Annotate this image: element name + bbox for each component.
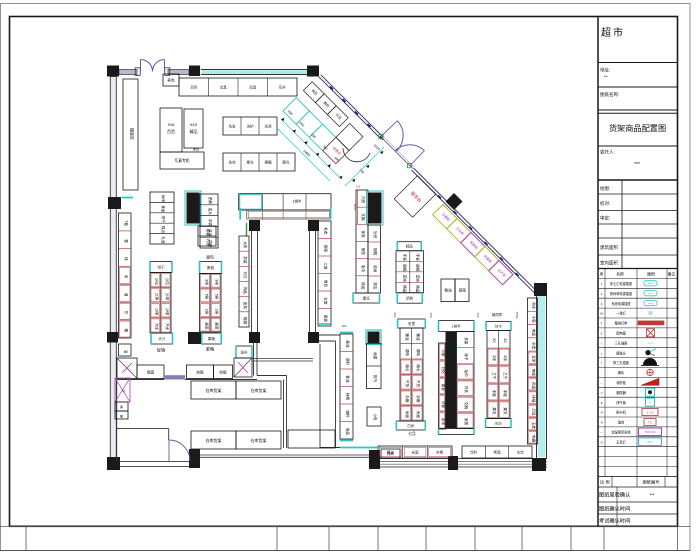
- svg-text:排汽: 排汽: [373, 375, 378, 383]
- svg-text:条码秤电源插座: 条码秤电源插座: [610, 291, 633, 296]
- svg-text:清洁: 清洁: [373, 282, 378, 290]
- svg-text:洗衣: 洗衣: [228, 159, 236, 164]
- svg-text:室内面积: 室内面积: [600, 260, 618, 267]
- svg-text:首饰: 首饰: [416, 275, 421, 283]
- svg-text:206: 206: [393, 312, 397, 317]
- svg-text:豆浆: 豆浆: [532, 355, 537, 363]
- svg-text:小电: 小电: [373, 414, 378, 421]
- svg-text:眼镜: 眼镜: [402, 264, 407, 272]
- svg-text:文胸: 文胸: [464, 402, 469, 410]
- svg-text:服装区: 服装区: [130, 128, 136, 140]
- svg-text:排插: 排插: [532, 395, 537, 403]
- svg-text:西服: 西服: [324, 245, 329, 253]
- svg-text:饼干: 饼干: [157, 264, 165, 269]
- svg-text:380: 380: [341, 324, 346, 328]
- svg-text:礼盒: 礼盒: [161, 236, 166, 244]
- svg-text:沙嗲: 沙嗲: [165, 308, 170, 316]
- svg-text:3排: 3排: [204, 279, 209, 285]
- svg-text:收纳: 收纳: [373, 265, 378, 273]
- svg-text:冲调: 冲调: [208, 219, 213, 227]
- svg-text:粮油: 粮油: [416, 333, 421, 341]
- svg-text:***: ***: [650, 493, 655, 498]
- svg-text:奶粉: 奶粉: [406, 295, 414, 300]
- svg-text:袜子: 袜子: [464, 353, 469, 361]
- svg-text:喇叭: 喇叭: [618, 370, 625, 375]
- svg-text:南北: 南北: [416, 364, 421, 372]
- svg-text:带三孔插座: 带三孔插座: [613, 360, 630, 365]
- svg-text:精品: 精品: [416, 285, 421, 293]
- svg-text:-4: -4: [600, 411, 603, 415]
- svg-text:米: 米: [124, 275, 129, 279]
- svg-text:米面: 米面: [405, 411, 410, 419]
- svg-text:序: 序: [600, 272, 604, 277]
- svg-text:===: ===: [648, 301, 654, 305]
- svg-text:文具: 文具: [220, 84, 228, 89]
- svg-text:七月: 七月: [408, 431, 416, 436]
- svg-text:洗护: 洗护: [246, 123, 254, 128]
- svg-text:手表: 手表: [416, 254, 421, 262]
- svg-text:蔬菜: 蔬菜: [459, 288, 467, 293]
- svg-text:调味: 调味: [416, 349, 421, 357]
- svg-text:超市: 超市: [601, 26, 625, 39]
- svg-text:汽水: 汽水: [165, 323, 170, 331]
- svg-text:收银: 收银: [219, 370, 227, 375]
- svg-text:花卉: 花卉: [279, 84, 287, 89]
- svg-text:2排: 2排: [215, 309, 220, 315]
- svg-text:烟感器: 烟感器: [616, 390, 626, 395]
- svg-text:客: 客: [120, 404, 123, 409]
- svg-text:沙拉: 沙拉: [155, 278, 160, 286]
- svg-text:精品: 精品: [190, 128, 198, 134]
- svg-text:收银: 收银: [196, 370, 204, 375]
- svg-text:酱油: 酱油: [346, 340, 351, 348]
- svg-text:风扇: 风扇: [532, 382, 537, 390]
- svg-text:手链: 手链: [492, 390, 497, 398]
- svg-text:沙拉: 沙拉: [165, 278, 170, 286]
- svg-text:3X: 3X: [503, 338, 507, 343]
- svg-text:溢补: 溢补: [240, 349, 248, 354]
- svg-text:文胸: 文胸: [361, 213, 366, 221]
- svg-text:===: ===: [648, 341, 654, 345]
- svg-text:女装: 女装: [324, 297, 329, 305]
- svg-text:考试确认时间: 考试确认时间: [599, 517, 630, 525]
- svg-text:消防栓: 消防栓: [616, 380, 626, 385]
- svg-text:日化: 日化: [441, 366, 446, 374]
- svg-text:米面: 米面: [411, 449, 419, 454]
- svg-text:休闲: 休闲: [161, 195, 166, 203]
- svg-text:童: 童: [124, 239, 129, 243]
- svg-text:精品: 精品: [402, 285, 407, 293]
- svg-text:审定:: 审定:: [600, 215, 610, 222]
- svg-text:x: x: [649, 401, 651, 405]
- svg-text:果糖: 果糖: [264, 159, 272, 164]
- svg-text:饮: 饮: [124, 311, 129, 315]
- svg-text:加湿喷雾系统: 加湿喷雾系统: [611, 430, 631, 435]
- svg-text:306: 306: [476, 312, 480, 317]
- svg-text:-6: -6: [600, 440, 603, 444]
- svg-text:服: 服: [120, 414, 123, 419]
- svg-text:五克灯: 五克灯: [616, 439, 626, 444]
- svg-text:仓库货架: 仓库货架: [206, 387, 222, 393]
- svg-text:绘图:: 绘图:: [600, 185, 610, 192]
- svg-text:果冻: 果冻: [503, 407, 508, 415]
- svg-text:麦片: 麦片: [208, 208, 213, 216]
- svg-text:调味: 调味: [405, 349, 410, 357]
- svg-text:果冻: 果冻: [246, 159, 254, 164]
- svg-text:男装: 男装: [243, 256, 248, 264]
- svg-text:内衣: 内衣: [361, 196, 366, 204]
- svg-text:毛巾: 毛巾: [464, 370, 469, 378]
- svg-text:图纸确认时间: 图纸确认时间: [599, 505, 630, 513]
- svg-text:整排灯带: 整排灯带: [615, 321, 629, 326]
- svg-text:1排半: 1排半: [452, 323, 462, 328]
- svg-text:玩具: 玩具: [249, 84, 257, 89]
- svg-text:毛巾: 毛巾: [361, 265, 366, 273]
- svg-text:百货: 百货: [167, 128, 175, 134]
- svg-text:果冻: 果冻: [492, 407, 497, 415]
- svg-text:排气扇: 排气扇: [616, 400, 626, 405]
- svg-text:杂粮: 杂粮: [405, 395, 410, 403]
- svg-text:沙嗲: 沙嗲: [155, 308, 160, 316]
- svg-text:天汁: 天汁: [158, 336, 166, 341]
- svg-text:鞋帽: 鞋帽: [243, 317, 248, 325]
- svg-text:名称: 名称: [616, 272, 624, 277]
- svg-text:5排: 5排: [215, 294, 220, 300]
- svg-text:调料: 调料: [346, 358, 351, 366]
- svg-text:奶粉: 奶粉: [208, 197, 213, 205]
- svg-text:皮具: 皮具: [243, 302, 248, 310]
- svg-text:三孔插座: 三孔插座: [615, 340, 629, 345]
- svg-text:-8: -8: [600, 421, 603, 425]
- svg-text:===: ===: [648, 282, 654, 286]
- svg-text:之宁: 之宁: [492, 372, 497, 380]
- svg-text:衬衫: 衬衫: [243, 272, 248, 280]
- svg-text:刷卡机: 刷卡机: [616, 410, 626, 415]
- svg-text:水白: 水白: [495, 420, 503, 425]
- svg-text:图例: 图例: [647, 272, 655, 277]
- svg-text:图纸编号: 图纸编号: [643, 479, 660, 486]
- svg-text:小家: 小家: [441, 349, 446, 357]
- svg-text:牙膏: 牙膏: [441, 401, 446, 409]
- svg-text:果略: 果略: [208, 336, 216, 341]
- svg-text:-7: -7: [600, 391, 603, 395]
- svg-text:食品: 食品: [346, 428, 351, 436]
- svg-text:手链: 手链: [503, 390, 508, 398]
- svg-text:1.3.5: 1.3.5: [647, 410, 654, 414]
- svg-text:童装: 童装: [324, 315, 329, 323]
- svg-text:汽水: 汽水: [155, 323, 160, 331]
- svg-text:图纸名称:: 图纸名称:: [600, 91, 619, 98]
- svg-text:毛衣: 毛衣: [324, 227, 329, 235]
- svg-text:T恤: T恤: [124, 220, 129, 226]
- svg-text:地址:: 地址:: [600, 67, 610, 73]
- svg-text:水饮: 水饮: [517, 449, 525, 454]
- svg-text:面包: 面包: [206, 255, 214, 260]
- svg-text:地屋: 地屋: [373, 352, 378, 360]
- svg-text:夹02: 夹02: [193, 147, 200, 152]
- svg-text:仓库货架: 仓库货架: [251, 387, 267, 393]
- svg-text:沙琪: 沙琪: [165, 293, 170, 301]
- svg-text:烟酒: 烟酒: [147, 370, 155, 375]
- svg-text:M: M: [648, 311, 652, 317]
- svg-text:香油: 香油: [346, 375, 351, 383]
- svg-text:比 例: 比 例: [600, 479, 610, 486]
- svg-text:写真专柜: 写真专柜: [174, 158, 189, 163]
- svg-text:童装: 童装: [206, 229, 211, 237]
- svg-text:饮料: 饮料: [470, 449, 478, 454]
- svg-text:情侣: 情侣: [324, 280, 329, 288]
- svg-text:洗涤: 洗涤: [264, 123, 272, 128]
- svg-text:啤酒: 啤酒: [493, 449, 501, 454]
- svg-text:之宁: 之宁: [503, 372, 508, 380]
- svg-text:食品: 食品: [161, 205, 166, 213]
- svg-text:手表: 手表: [402, 254, 407, 262]
- svg-text:5排: 5排: [204, 294, 209, 300]
- svg-text:南北: 南北: [405, 364, 410, 372]
- svg-text:监控: 监控: [618, 420, 625, 425]
- svg-text:家居: 家居: [464, 418, 469, 426]
- svg-text:700 600: 700 600: [645, 430, 656, 434]
- svg-text:洗发: 洗发: [228, 123, 236, 128]
- svg-text:委托人:: 委托人:: [600, 149, 615, 155]
- svg-text:衣架: 衣架: [464, 337, 469, 345]
- svg-text:菜略: 菜略: [206, 346, 215, 353]
- svg-text:多士汇电源插座: 多士汇电源插座: [610, 281, 633, 286]
- svg-text:眼镜: 眼镜: [416, 264, 421, 272]
- svg-text:电饭: 电饭: [532, 329, 537, 337]
- svg-text:促销: 促销: [157, 347, 165, 354]
- svg-text:家居: 家居: [361, 248, 366, 256]
- svg-text:夹里: 夹里: [408, 321, 416, 326]
- svg-text:灯具: 灯具: [532, 408, 537, 416]
- svg-text:3排: 3排: [215, 279, 220, 285]
- svg-text:糕点: 糕点: [161, 226, 166, 234]
- svg-text:3排: 3排: [503, 355, 508, 361]
- svg-text:3X: 3X: [492, 338, 496, 343]
- svg-text:内衣: 内衣: [206, 239, 211, 247]
- svg-text:备注: 备注: [668, 272, 676, 277]
- svg-text:建设: 建设: [363, 295, 371, 300]
- svg-text:胡同早: 胡同早: [492, 312, 503, 317]
- svg-text:一排灯: 一排灯: [616, 311, 626, 316]
- svg-text:杂粮: 杂粮: [436, 449, 444, 454]
- svg-text:摄像头: 摄像头: [616, 350, 626, 355]
- svg-text:2.9: 2.9: [356, 185, 360, 189]
- svg-text:仓库货架: 仓库货架: [251, 437, 267, 443]
- svg-text:1排半: 1排半: [292, 199, 302, 204]
- svg-text:粮油: 粮油: [405, 333, 410, 341]
- svg-text:3排: 3排: [492, 355, 497, 361]
- svg-text:货架商品配置图: 货架商品配置图: [609, 123, 666, 133]
- svg-text:T: T: [601, 322, 603, 326]
- svg-text:白米: 白米: [407, 423, 415, 428]
- svg-text:建筑面积: 建筑面积: [600, 244, 618, 251]
- svg-text:纸巾: 纸巾: [441, 418, 446, 426]
- svg-text:首饰: 首饰: [402, 275, 407, 283]
- svg-text:306: 306: [429, 312, 433, 317]
- svg-text:干货: 干货: [416, 380, 421, 388]
- svg-text:辅料: 辅料: [346, 410, 351, 418]
- svg-text:电器: 电器: [532, 435, 537, 443]
- svg-text:校对:: 校对:: [600, 200, 610, 207]
- svg-text:杂粮: 杂粮: [416, 395, 421, 403]
- svg-text:香皂: 香皂: [441, 384, 446, 392]
- svg-text:小家: 小家: [532, 316, 537, 324]
- svg-text:--: --: [601, 381, 603, 385]
- svg-text:大衣: 大衣: [243, 241, 248, 249]
- svg-text:百货: 百货: [190, 84, 198, 89]
- svg-text:粮油: 粮油: [444, 288, 452, 293]
- svg-text:图纸周验确认: 图纸周验确认: [599, 491, 631, 499]
- svg-text:味精: 味精: [346, 393, 351, 401]
- svg-text:工装: 工装: [324, 262, 329, 270]
- svg-text:甘宁: 甘宁: [495, 323, 503, 328]
- svg-text:***: ***: [634, 162, 640, 168]
- svg-text:+30...: +30...: [646, 440, 654, 444]
- svg-text:沙琪: 沙琪: [155, 293, 160, 301]
- svg-text:饰品: 饰品: [243, 287, 248, 295]
- svg-text:干货: 干货: [405, 380, 410, 388]
- svg-text:排风: 排风: [387, 451, 394, 456]
- svg-text:五金: 五金: [532, 422, 537, 430]
- svg-text:水壶: 水壶: [532, 342, 537, 350]
- svg-text:拖鞋: 拖鞋: [373, 248, 378, 256]
- svg-text:**: **: [604, 75, 608, 80]
- svg-text:床品: 床品: [361, 282, 366, 290]
- svg-text:米面: 米面: [416, 411, 421, 419]
- svg-text:-: -: [601, 371, 602, 375]
- svg-text:仓库货架: 仓库货架: [206, 437, 222, 443]
- svg-text:针织: 针织: [373, 231, 378, 239]
- svg-text:系统电源插座: 系统电源插座: [611, 301, 631, 306]
- svg-text:袜: 袜: [124, 257, 129, 261]
- svg-text:袜类: 袜类: [361, 231, 366, 239]
- svg-text:2550: 2550: [515, 312, 519, 319]
- svg-text:915: 915: [190, 122, 197, 127]
- svg-text:养会: 养会: [167, 78, 175, 83]
- svg-text:精品: 精品: [406, 244, 414, 249]
- svg-text:膨化: 膨化: [282, 159, 290, 164]
- svg-text:酱菜: 酱菜: [204, 322, 209, 330]
- svg-text:配电箱: 配电箱: [616, 331, 626, 336]
- svg-text:916: 916: [168, 122, 175, 127]
- svg-text:内衣: 内衣: [464, 386, 469, 394]
- svg-text:酒: 酒: [124, 293, 129, 297]
- svg-text:饼干: 饼干: [161, 216, 166, 224]
- svg-text:===: ===: [648, 291, 654, 295]
- svg-text:酱菜: 酱菜: [215, 322, 220, 330]
- svg-text:热水: 热水: [532, 302, 537, 310]
- svg-text:蛋糕: 蛋糕: [207, 265, 215, 270]
- svg-text:粮: 粮: [124, 329, 129, 333]
- svg-text:电磁: 电磁: [532, 369, 537, 377]
- svg-text:2排: 2排: [204, 309, 209, 315]
